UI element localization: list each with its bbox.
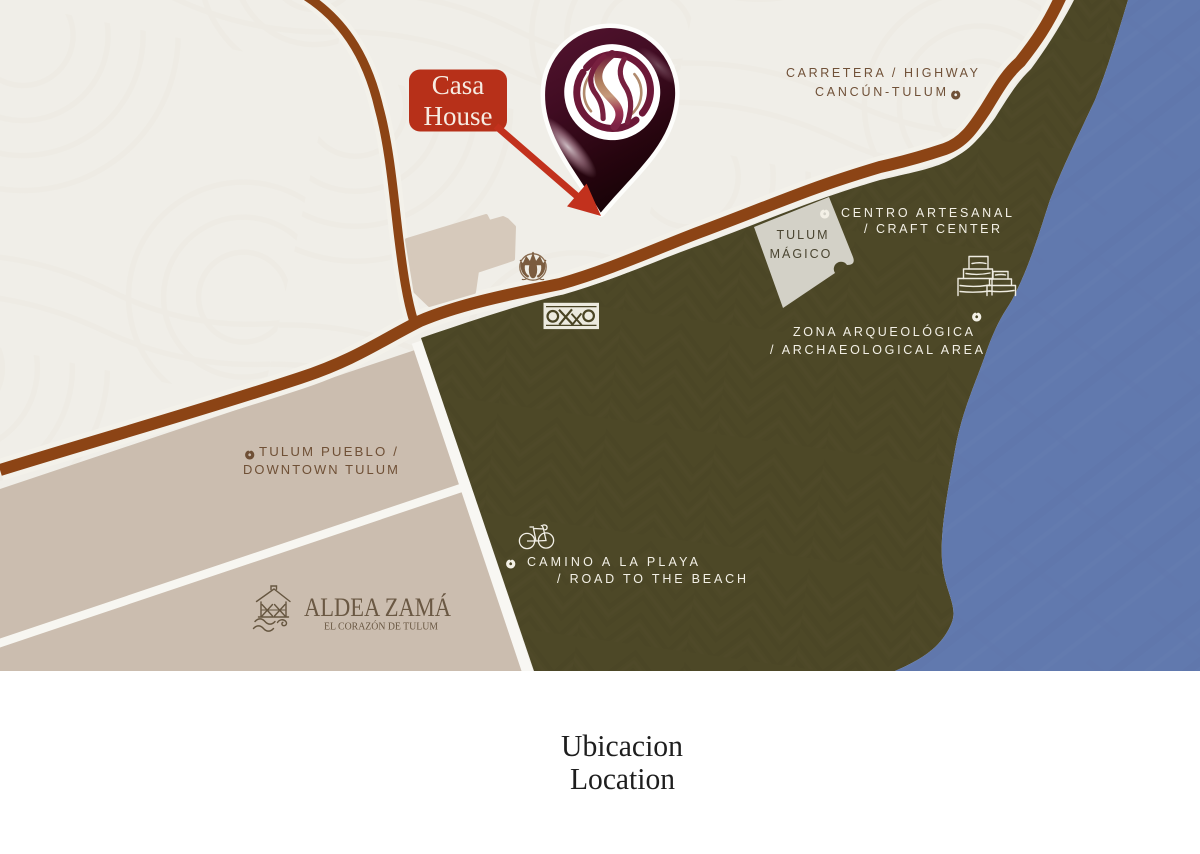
svg-text:ALDEA ZAMÁ: ALDEA ZAMÁ	[304, 593, 451, 622]
svg-text:CENTRO ARTESANAL: CENTRO ARTESANAL	[841, 206, 1014, 220]
svg-text:Casa: Casa	[432, 70, 485, 100]
svg-text:CAMINO A LA PLAYA: CAMINO A LA PLAYA	[527, 555, 700, 569]
svg-text:House: House	[424, 101, 493, 131]
svg-text:MÁGICO: MÁGICO	[770, 246, 833, 261]
svg-text:/ ROAD TO THE BEACH: / ROAD TO THE BEACH	[557, 572, 748, 586]
svg-text:Ubicacion: Ubicacion	[561, 728, 683, 763]
svg-text:TULUM PUEBLO /: TULUM PUEBLO /	[259, 445, 399, 459]
svg-text:Location: Location	[570, 761, 675, 796]
svg-text:DOWNTOWN TULUM: DOWNTOWN TULUM	[243, 463, 400, 477]
svg-text:CARRETERA / HIGHWAY: CARRETERA / HIGHWAY	[786, 66, 980, 80]
svg-text:EL CORAZÓN DE TULUM: EL CORAZÓN DE TULUM	[324, 621, 438, 633]
svg-text:ZONA ARQUEOLÓGICA: ZONA ARQUEOLÓGICA	[793, 324, 975, 339]
svg-text:/ CRAFT CENTER: / CRAFT CENTER	[864, 222, 1002, 236]
svg-text:/ ARCHAEOLOGICAL AREA: / ARCHAEOLOGICAL AREA	[770, 343, 985, 357]
svg-text:TULUM: TULUM	[776, 228, 829, 242]
svg-text:CANCÚN-TULUM: CANCÚN-TULUM	[815, 84, 948, 99]
